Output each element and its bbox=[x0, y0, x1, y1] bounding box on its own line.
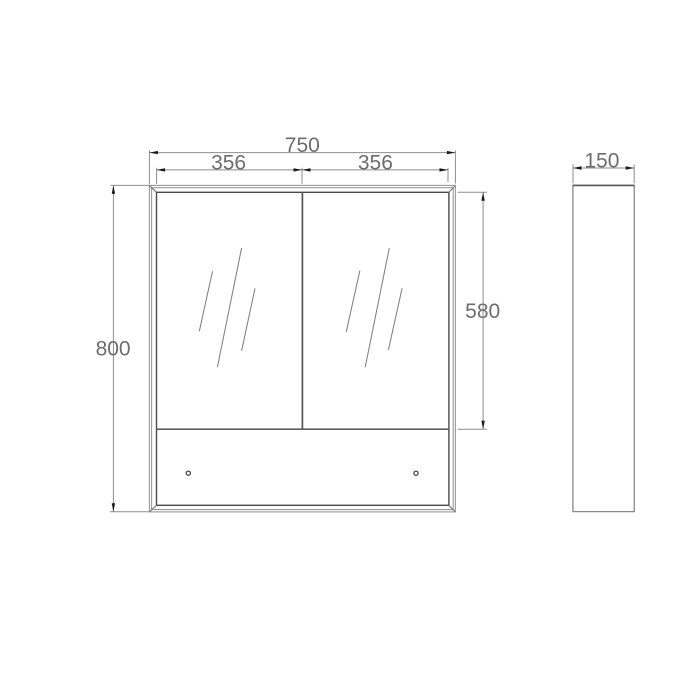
svg-text:356: 356 bbox=[211, 151, 246, 174]
svg-text:750: 750 bbox=[285, 134, 320, 157]
svg-text:150: 150 bbox=[584, 150, 619, 173]
svg-text:580: 580 bbox=[465, 300, 500, 323]
svg-text:356: 356 bbox=[358, 151, 393, 174]
svg-text:800: 800 bbox=[96, 337, 131, 360]
